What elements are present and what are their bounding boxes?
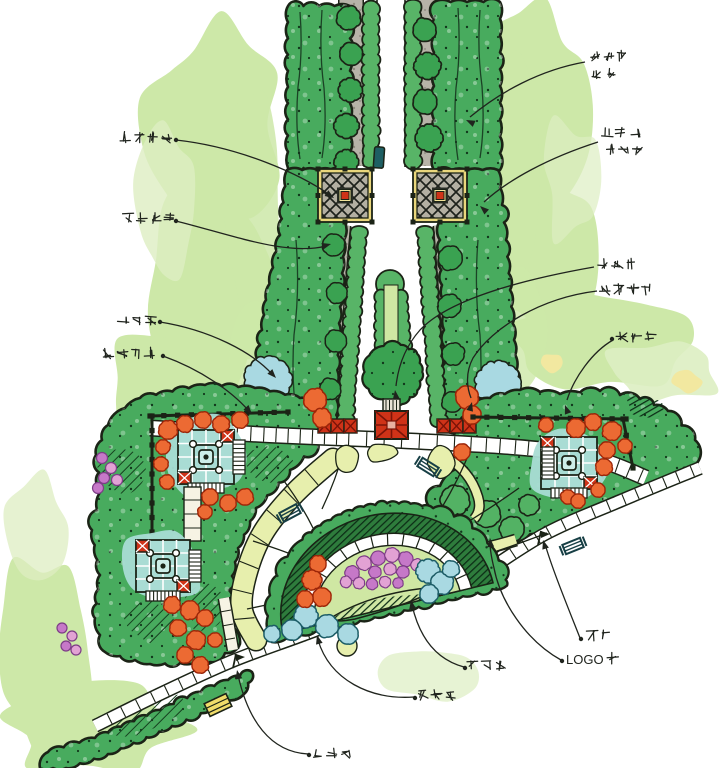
svg-text:LOGO: LOGO [566,652,604,667]
